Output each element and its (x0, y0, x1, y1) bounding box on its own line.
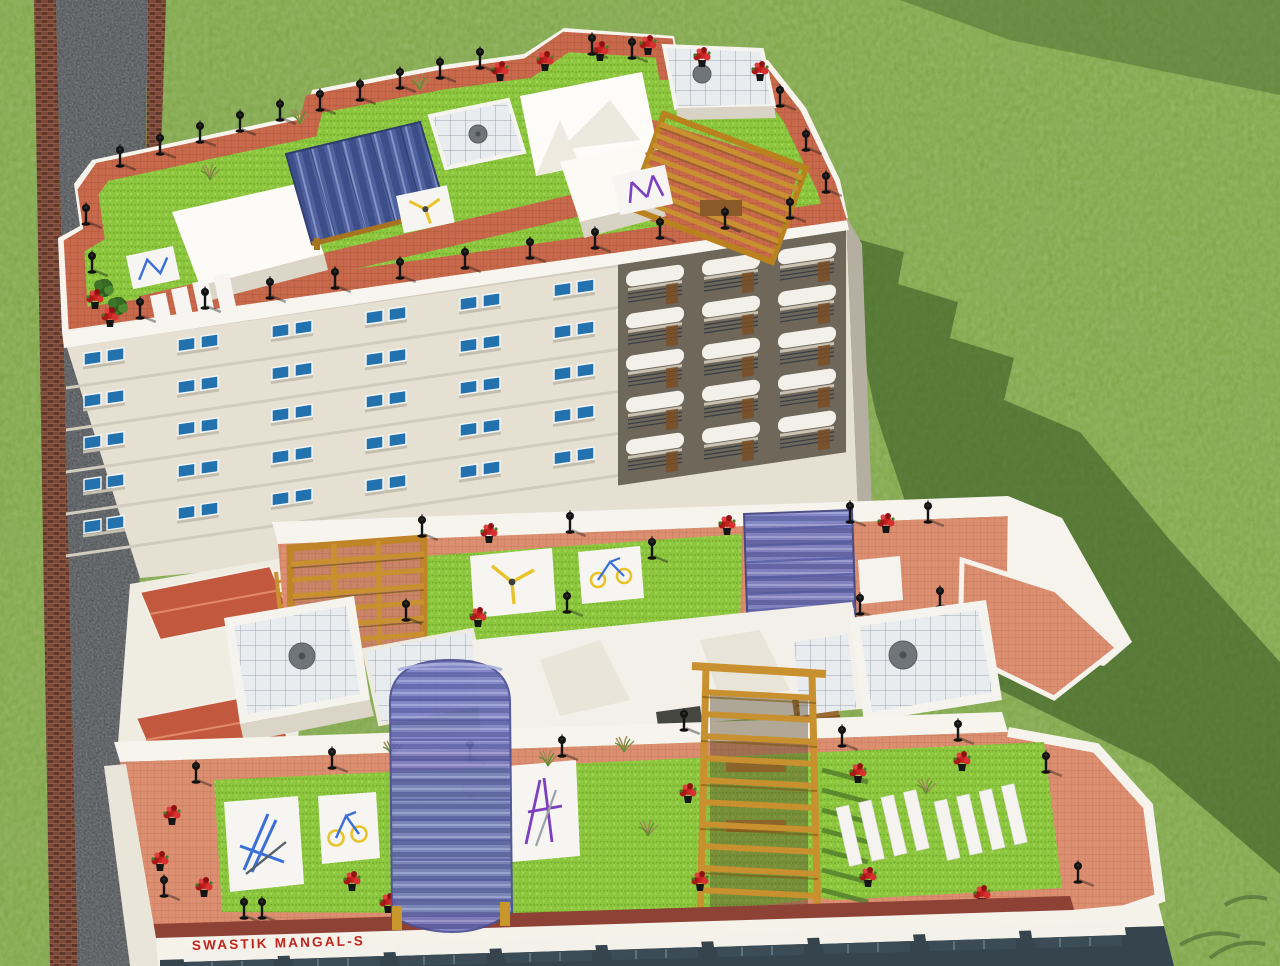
machine-room-skylight (224, 596, 374, 742)
pergola-bench (700, 200, 742, 216)
roof-vent-fan (693, 65, 711, 83)
gym-mat (858, 556, 903, 604)
aerial-render: SWASTIK MANGAL-S (0, 0, 1280, 966)
gym-mat (470, 548, 556, 618)
glass-canopy-violet-front (390, 660, 512, 932)
front-building: SWASTIK MANGAL-S (104, 496, 1174, 966)
gym-mat (578, 546, 644, 604)
gym-mat (224, 796, 304, 892)
render-canvas: SWASTIK MANGAL-S (0, 0, 1280, 966)
machine-room-skylight-d (664, 46, 776, 120)
gym-mat (508, 760, 580, 862)
gym-mat (318, 792, 380, 864)
